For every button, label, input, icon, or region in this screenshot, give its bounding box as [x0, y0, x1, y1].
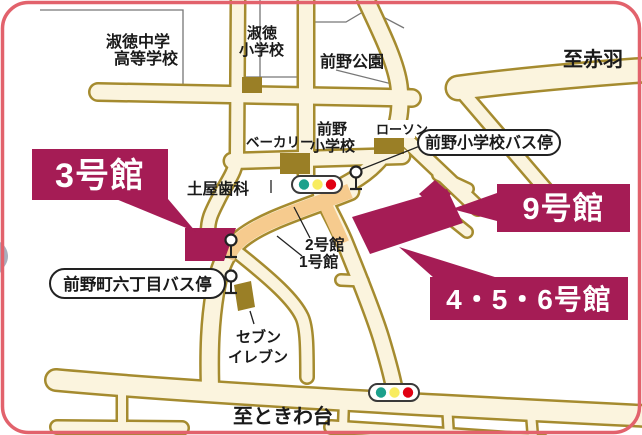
label-maeno-elem-line1: 前野: [317, 120, 347, 138]
bus-stop-pill-label: 前野小学校バス停: [425, 133, 553, 152]
label-building-2: 2号館: [305, 235, 345, 254]
banner-building-3-label: 3号館: [55, 157, 145, 195]
bakery-building: [280, 153, 310, 174]
map-canvas: 淑徳中学 高等学校 淑徳 小学校 前野公園 前野 小学校 ベーカリー ローソン …: [0, 0, 642, 435]
label-tsuchiya-dental: 土屋歯科: [187, 179, 250, 198]
label-to-akabane: 至赤羽: [563, 47, 623, 71]
label-building-1: 1号館: [299, 252, 339, 271]
label-shukutoku-jh-line1: 淑徳中学: [106, 32, 170, 51]
label-shukutoku-elem-line2: 小学校: [239, 41, 285, 59]
label-maeno-elem-line2: 小学校: [310, 137, 356, 155]
label-shukutoku-elem-line1: 淑徳: [247, 24, 277, 42]
traffic-light-icon: [292, 176, 342, 193]
bus-stop-pill-maenocho-6chome: 前野町六丁目バス停: [50, 269, 225, 298]
label-seven-eleven-line1: セブン: [236, 328, 281, 346]
bus-stop-pill-label: 前野町六丁目バス停: [63, 274, 212, 294]
traffic-light-icon: [369, 384, 419, 401]
shukutoku-elementary-building: [242, 77, 262, 93]
bus-stop-pill-maeno-shogakko: 前野小学校バス停: [418, 130, 560, 155]
label-seven-eleven-line2: イレブン: [228, 348, 288, 366]
lawson-building: [374, 138, 404, 154]
campus-access-map: 淑徳中学 高等学校 淑徳 小学校 前野公園 前野 小学校 ベーカリー ローソン …: [0, 0, 642, 435]
banner-building-9-label: 9号館: [522, 191, 604, 226]
label-shukutoku-jh-line2: 高等学校: [114, 49, 179, 68]
label-bakery: ベーカリー: [246, 135, 314, 150]
banner-building-456-label: 4・5・6号館: [446, 283, 612, 315]
label-to-tokiwadai: 至ときわ台: [233, 404, 333, 428]
label-maeno-park: 前野公園: [320, 52, 384, 71]
